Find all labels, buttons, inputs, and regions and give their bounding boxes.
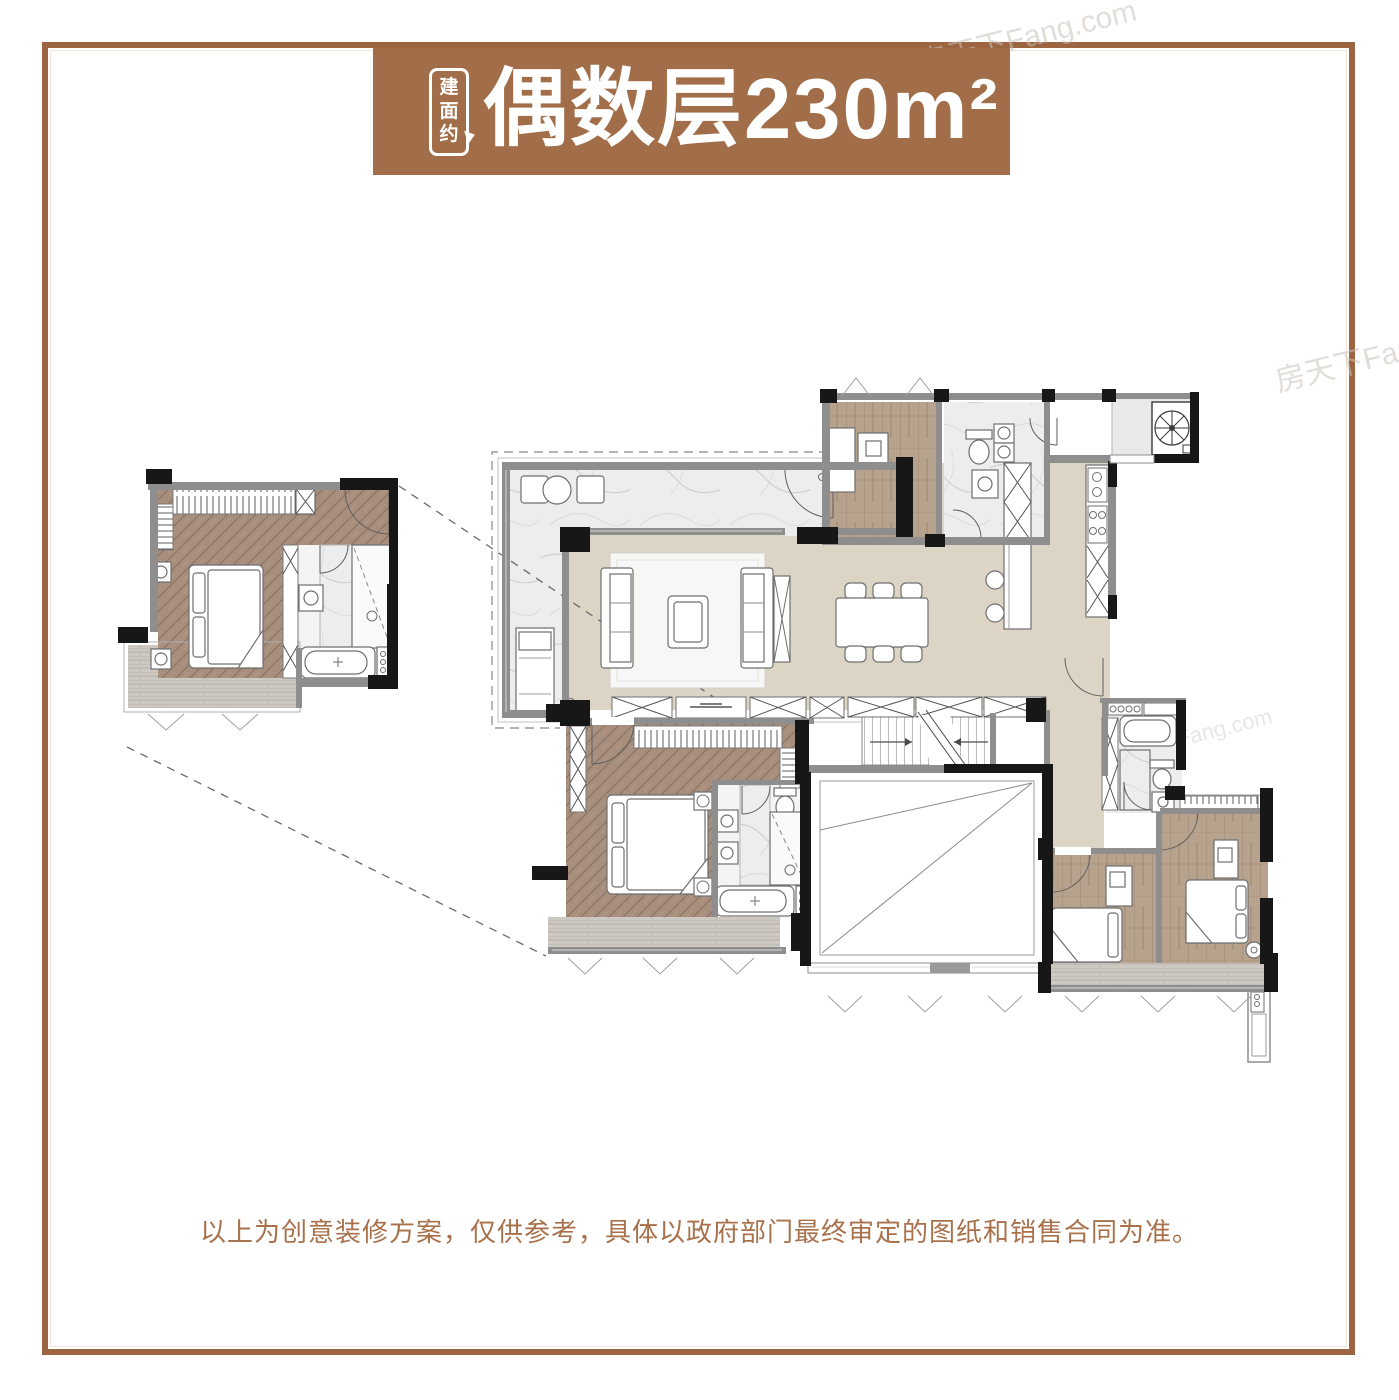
equipment-platform: [1030, 402, 1192, 455]
title-banner: 建 面 约 偶数层230m²: [373, 48, 1010, 175]
floor-area-title: 偶数层230m²: [483, 67, 1000, 152]
badge-char: 建: [439, 76, 458, 100]
ac-platform-box: [1248, 988, 1270, 1062]
disclaimer-text: 以上为创意装修方案，仅供参考，具体以政府部门最终审定的图纸和销售合同为准。: [0, 1212, 1399, 1249]
living-room: [601, 553, 790, 688]
floor-plan: [0, 0, 1399, 1400]
dining-area: [836, 583, 928, 662]
badge-tail: [464, 127, 477, 143]
badge-char: 面: [439, 100, 458, 124]
floors: [505, 398, 1268, 985]
badge-char: 约: [439, 123, 458, 147]
area-badge: 建 面 约: [429, 68, 469, 156]
page: { "banner": { "badge_chars": ["建", "面", …: [0, 0, 1399, 1400]
detail-view-master-suite: [118, 469, 398, 730]
